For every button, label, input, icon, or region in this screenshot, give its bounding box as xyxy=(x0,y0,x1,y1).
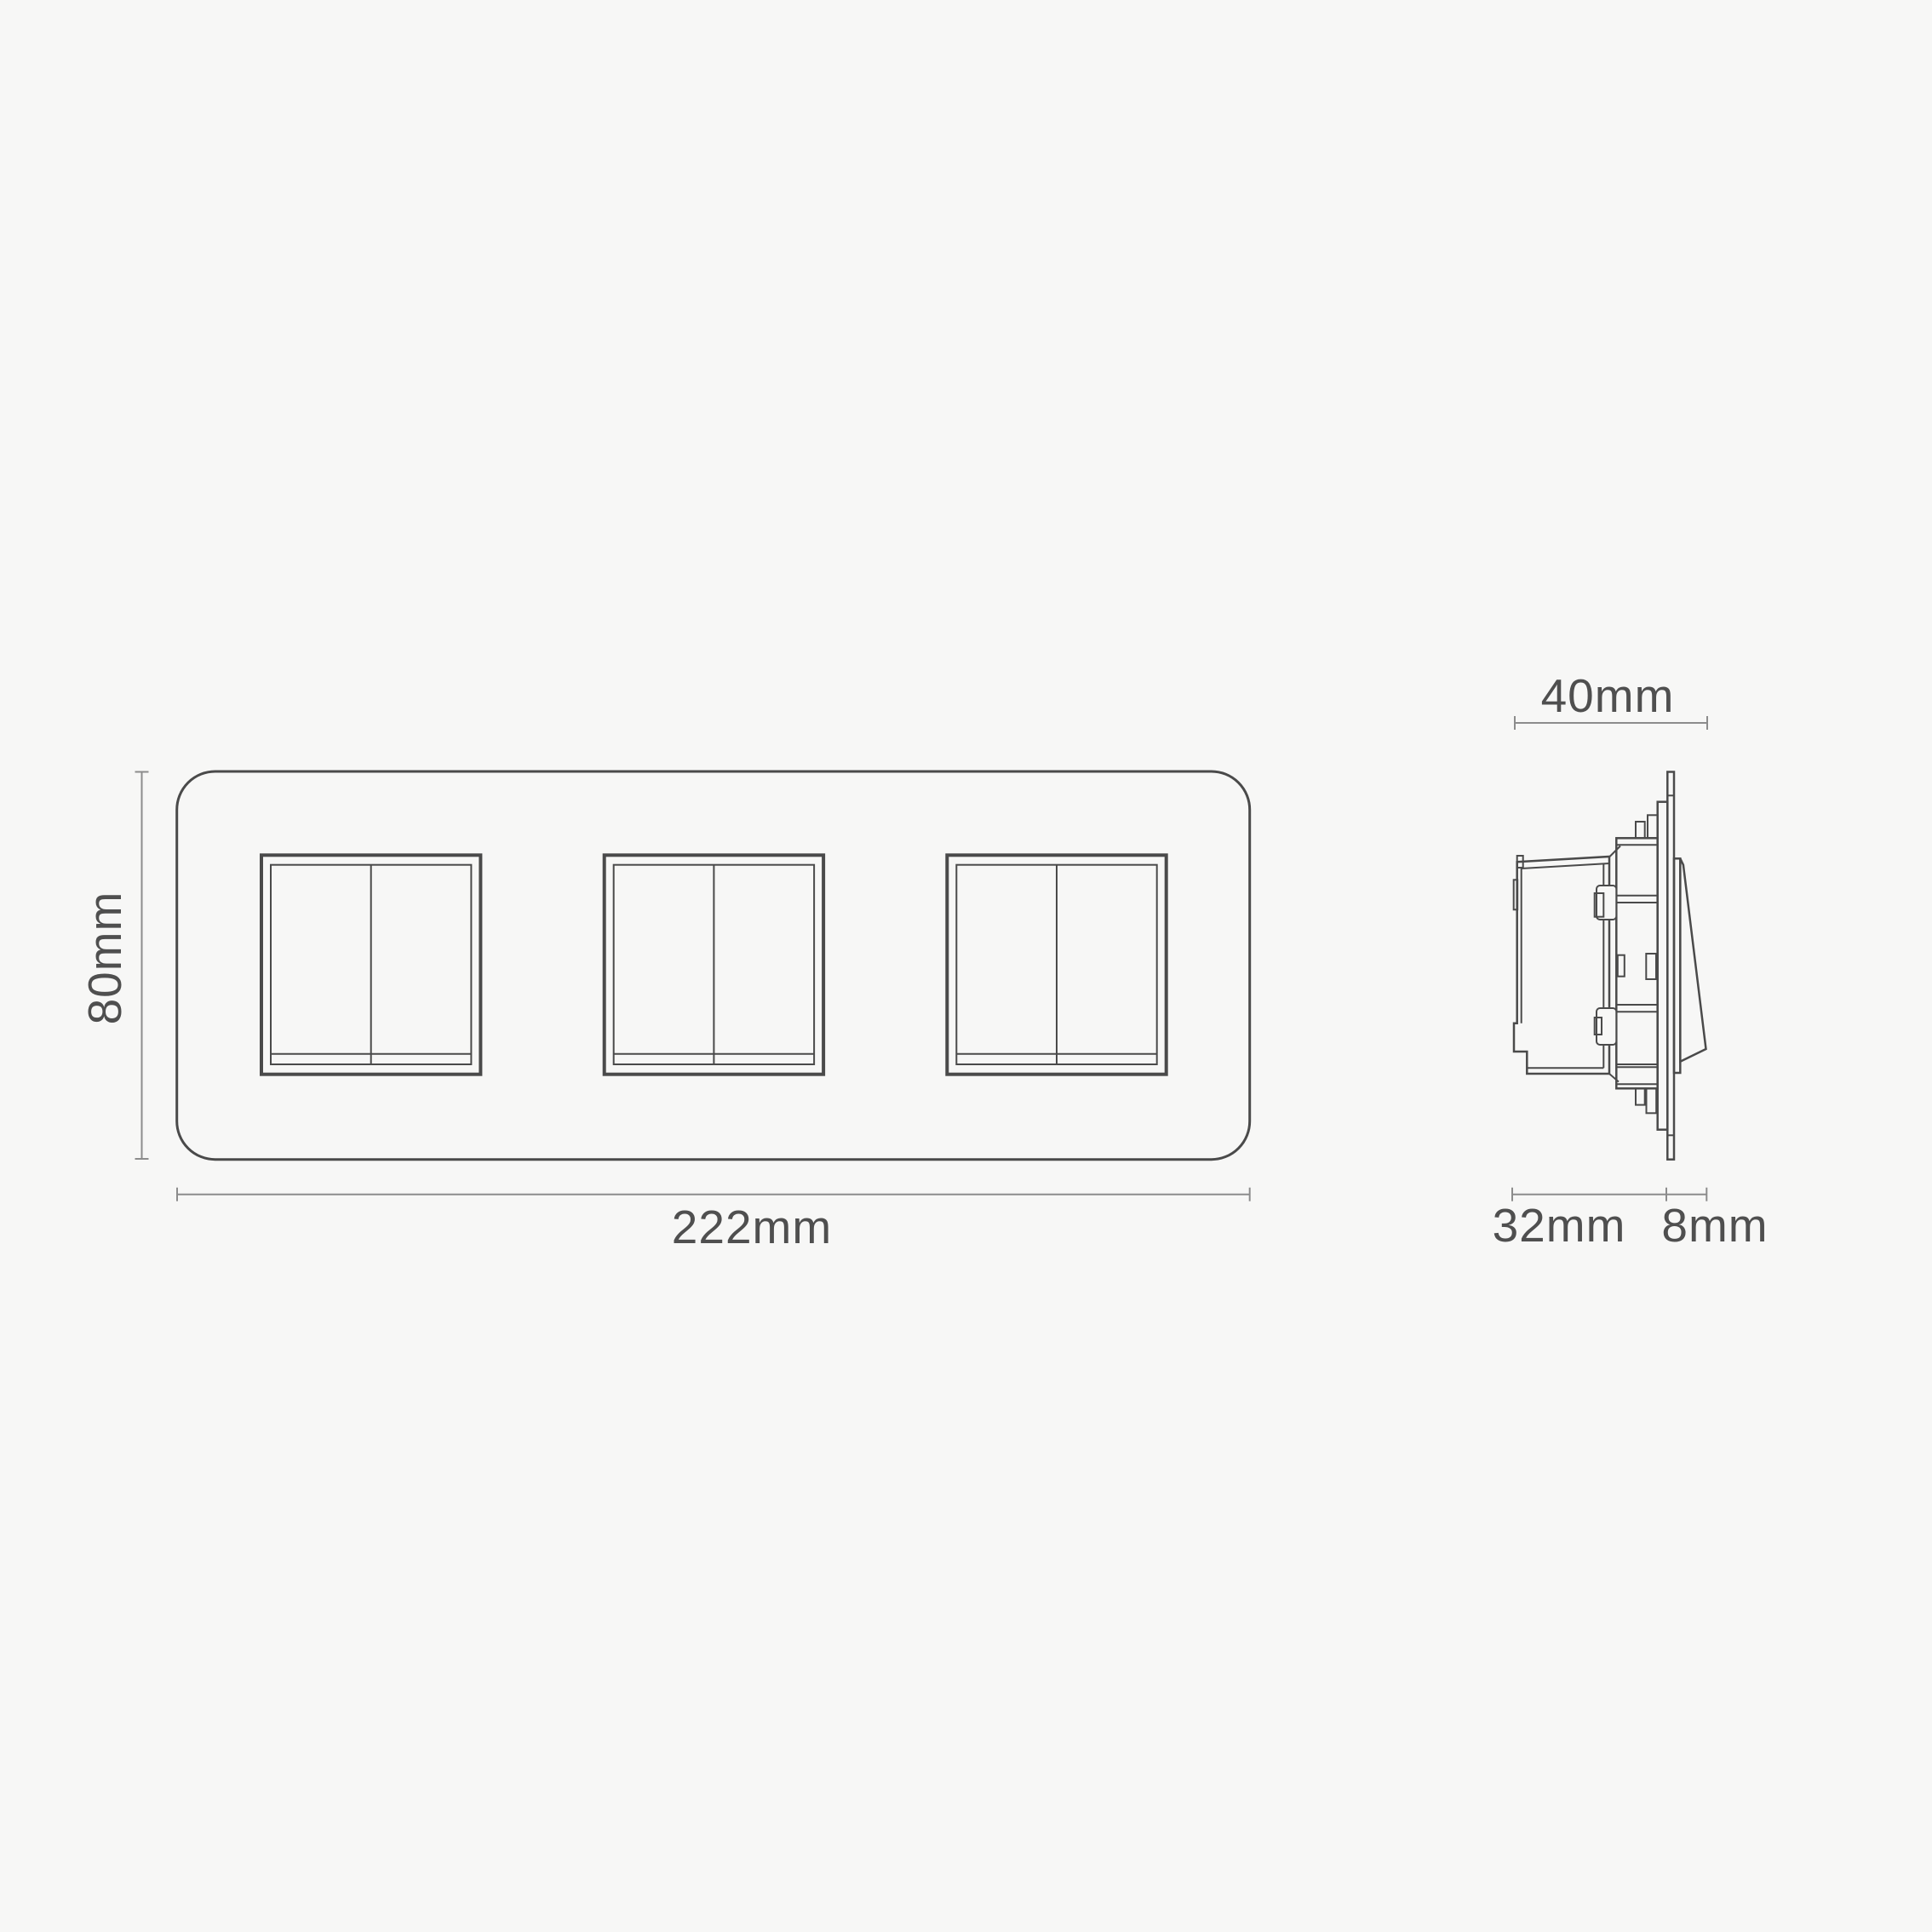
clamp-hook xyxy=(1597,1008,1616,1045)
total-depth-label: 40mm xyxy=(1541,669,1675,722)
claw-step xyxy=(1648,815,1658,838)
side-mounting-frame xyxy=(1658,802,1668,1130)
back-box-side-clip xyxy=(1514,880,1518,909)
side-fixing-claw-bottom xyxy=(1636,1088,1656,1113)
box-depth-label: 32mm xyxy=(1493,1199,1626,1252)
front-view: 80mm 222mm xyxy=(78,771,1250,1253)
width-dimension: 222mm xyxy=(177,1188,1250,1253)
side-fixing-claw-top xyxy=(1636,815,1658,838)
mechanism-slot xyxy=(1646,954,1656,979)
claw-screw xyxy=(1636,822,1645,838)
side-mechanism-body xyxy=(1616,838,1657,1088)
claw-step xyxy=(1647,1088,1657,1113)
box-depth-dimension: 32mm 8mm xyxy=(1493,1188,1769,1252)
switch-module-3 xyxy=(947,855,1166,1074)
height-dimension: 80mm xyxy=(78,772,149,1160)
width-dimension-label: 222mm xyxy=(672,1201,832,1253)
dimension-diagram: 80mm 222mm xyxy=(0,0,1932,1932)
clamp-hook xyxy=(1597,886,1616,920)
side-terminal-clamp-top xyxy=(1595,886,1617,920)
switch-module-2 xyxy=(605,855,823,1074)
back-box-outline xyxy=(1514,857,1609,1074)
mechanism-outline xyxy=(1616,838,1657,1088)
side-view: 40mm 32mm 8mm xyxy=(1493,669,1769,1252)
back-box-inner-top xyxy=(1522,863,1609,869)
side-terminal-clamp-bottom xyxy=(1595,1008,1617,1045)
protrusion-label: 8mm xyxy=(1661,1199,1768,1252)
total-depth-dimension: 40mm xyxy=(1515,669,1707,730)
mechanism-slot xyxy=(1618,955,1625,977)
claw-screw xyxy=(1636,1088,1645,1104)
diagram-canvas: 80mm 222mm xyxy=(0,0,1932,1932)
height-dimension-label: 80mm xyxy=(78,891,131,1025)
side-back-box xyxy=(1514,846,1620,1082)
box-top-chamfer xyxy=(1609,846,1620,857)
switch-module-1 xyxy=(261,855,480,1074)
lever-wedge xyxy=(1680,858,1706,1061)
side-rocker-lever xyxy=(1674,858,1706,1073)
